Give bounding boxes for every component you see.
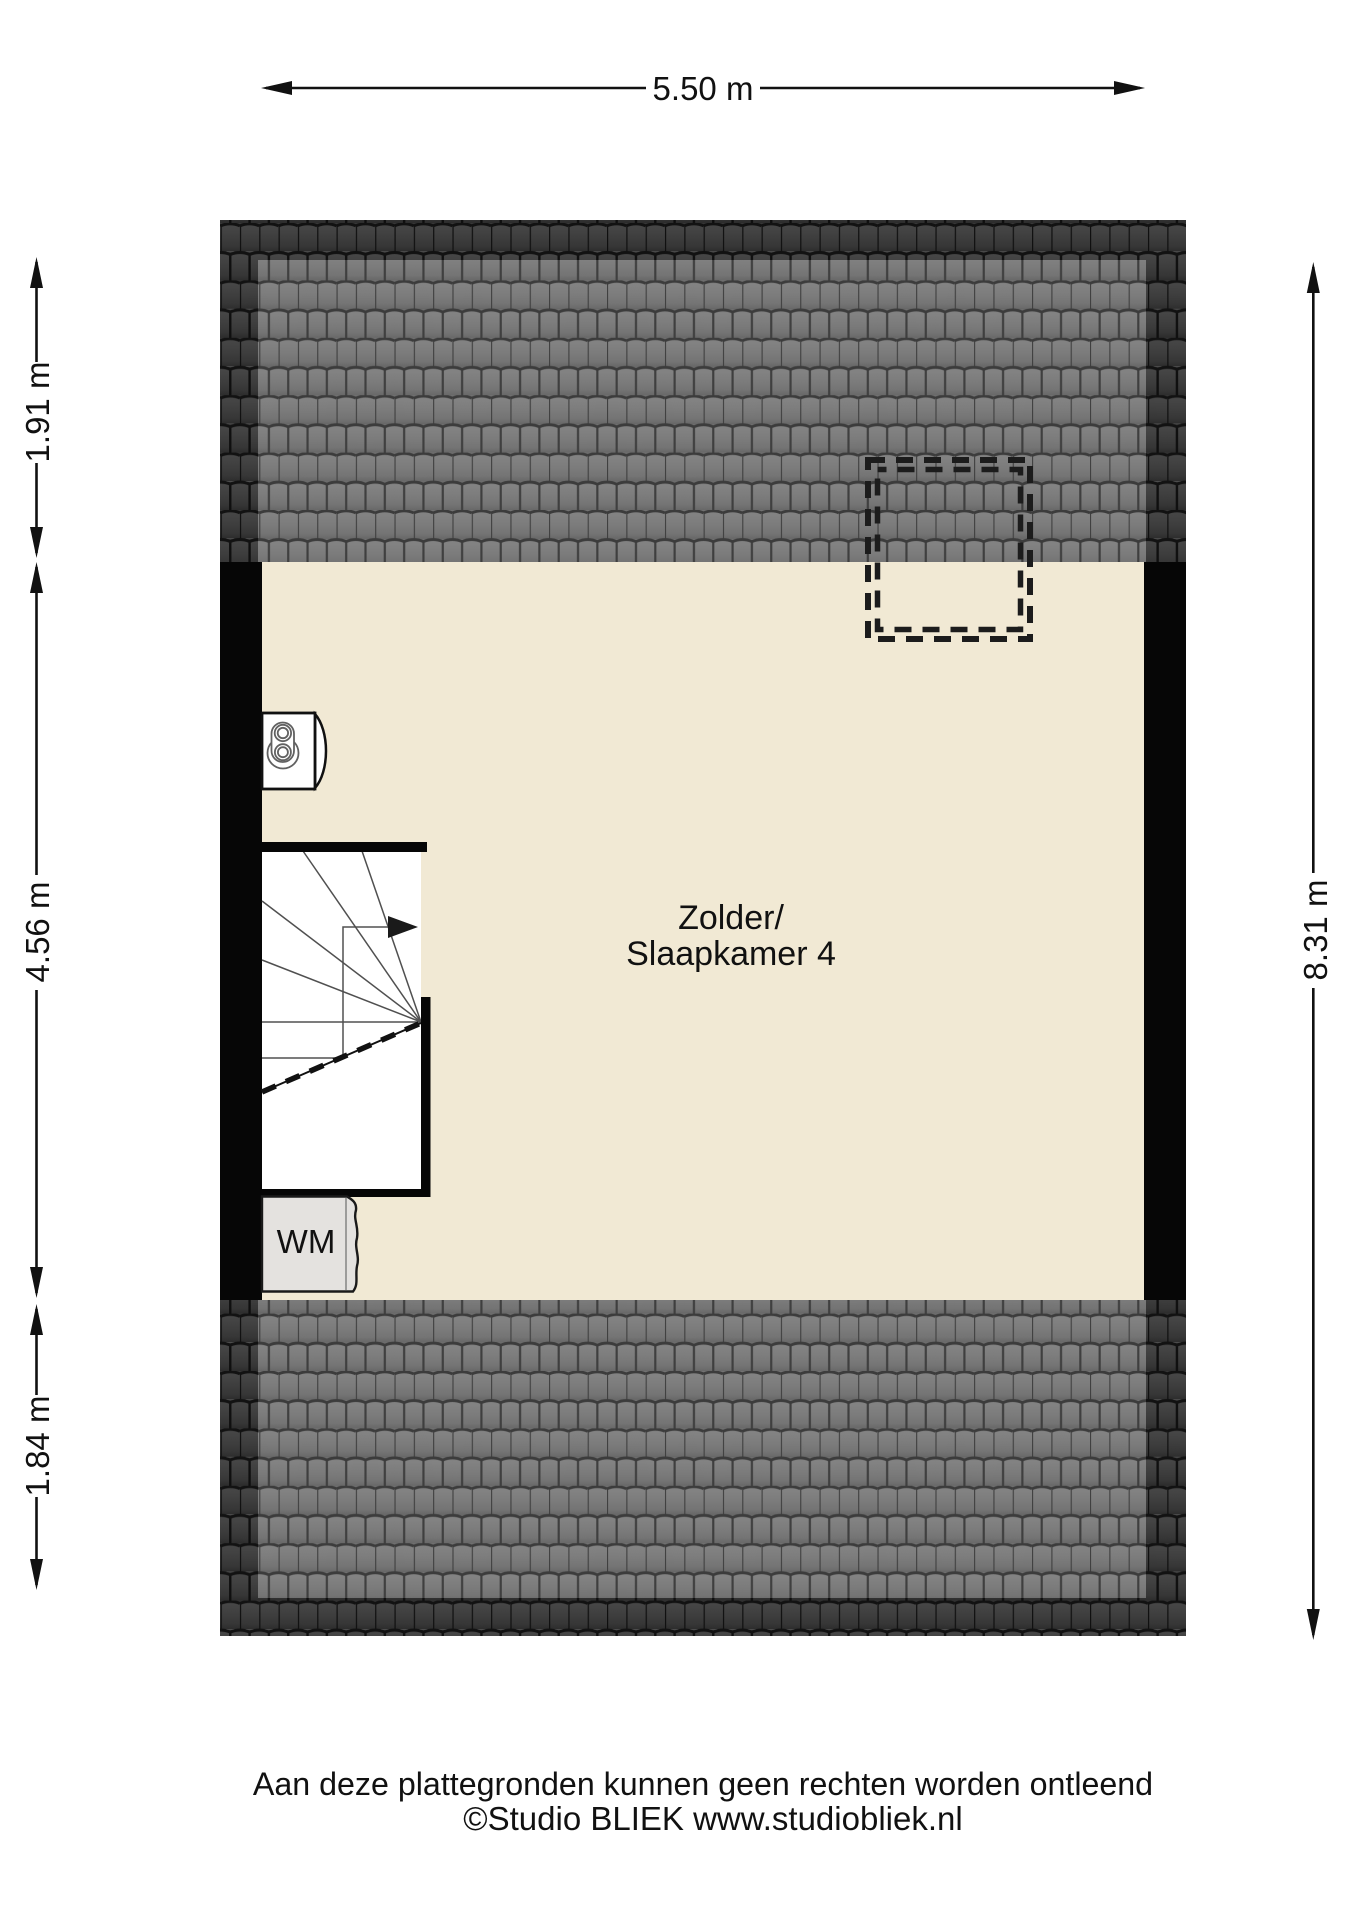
svg-text:Slaapkamer 4: Slaapkamer 4	[626, 935, 836, 973]
svg-text:1.84 m: 1.84 m	[19, 1396, 56, 1497]
svg-text:8.31 m: 8.31 m	[1297, 880, 1334, 981]
svg-text:1.91 m: 1.91 m	[19, 362, 56, 463]
svg-text:4.56 m: 4.56 m	[19, 882, 56, 983]
svg-text:Aan deze plattegronden kunnen: Aan deze plattegronden kunnen geen recht…	[253, 1766, 1153, 1802]
svg-text:©Studio BLIEK www.studiobliek.: ©Studio BLIEK www.studiobliek.nl	[463, 1800, 962, 1837]
svg-text:WM: WM	[277, 1223, 336, 1260]
svg-text:5.50 m: 5.50 m	[653, 70, 754, 107]
svg-text:Zolder/: Zolder/	[678, 899, 784, 937]
